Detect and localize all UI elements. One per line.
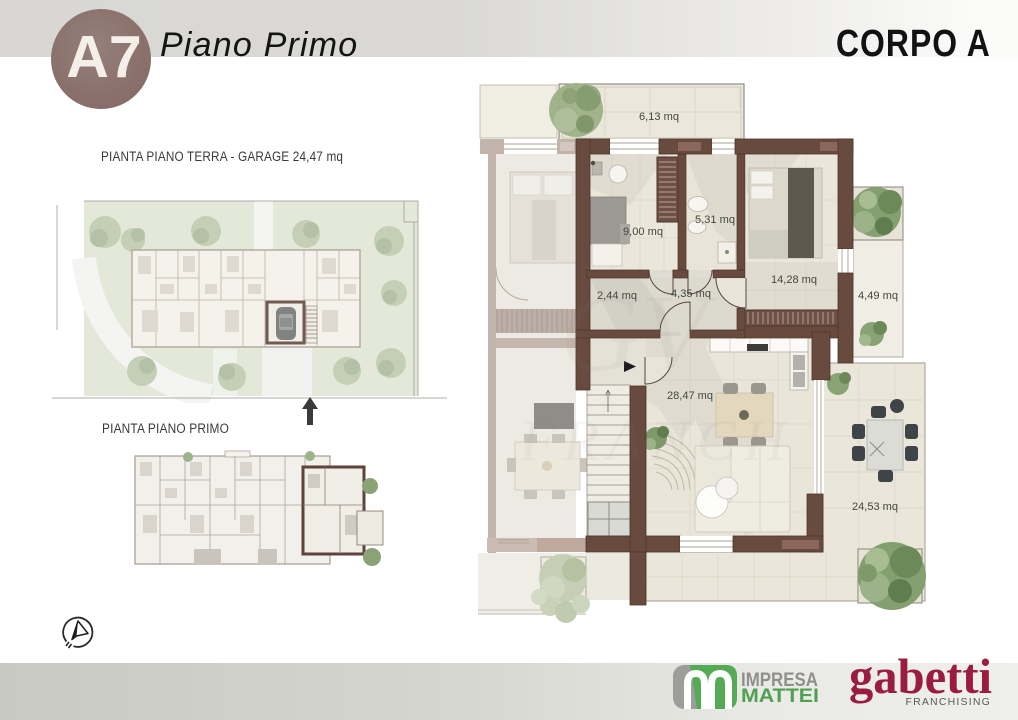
svg-text:MATTEI: MATTEI [741,686,819,707]
svg-text:6,13 mq: 6,13 mq [639,111,679,123]
svg-text:FRANCH: FRANCH [519,408,794,473]
svg-text:5,31 mq: 5,31 mq [695,214,735,226]
svg-text:G: G [560,272,639,394]
svg-text:24,53 mq: 24,53 mq [852,501,898,513]
svg-text:14,28 mq: 14,28 mq [771,274,817,286]
svg-text:FRANCHISING: FRANCHISING [905,696,991,708]
svg-text:9,00 mq: 9,00 mq [623,226,663,238]
svg-text:V: V [640,272,718,394]
svg-text:4,49 mq: 4,49 mq [858,290,898,302]
